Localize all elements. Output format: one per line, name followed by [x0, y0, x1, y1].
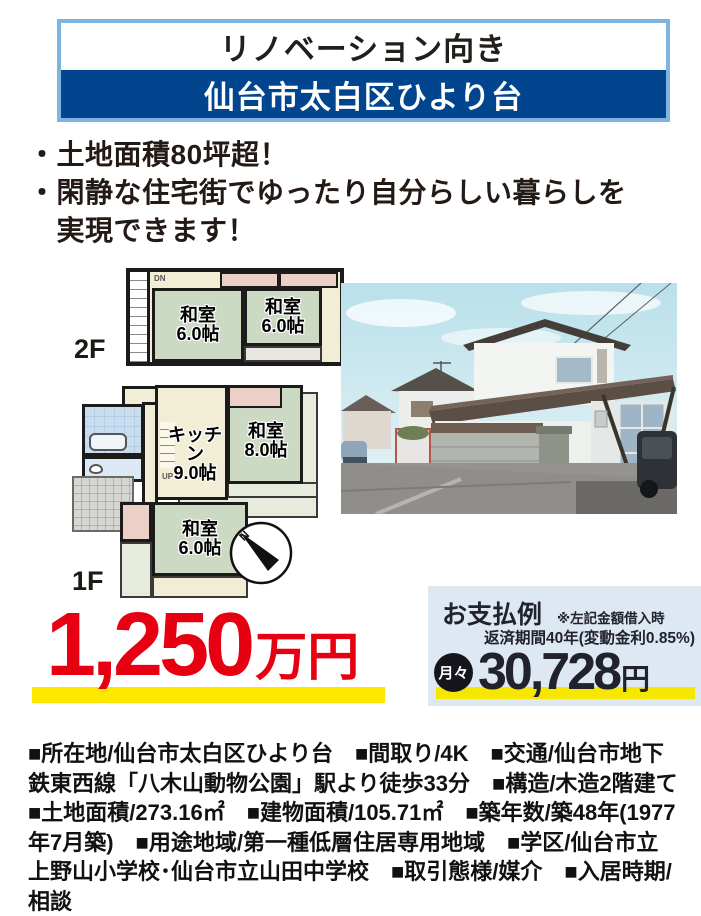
- room-size: 6.0帖: [261, 317, 304, 336]
- highlight-line-2: ・閑静な住宅街でゆったり自分らしい暮らしを: [28, 174, 688, 212]
- stair-down-label: DN: [154, 274, 166, 283]
- property-details-text: ■所在地/仙台市太白区ひより台 ■間取り/4K ■交通/仙台市地下鉄東西線「八木…: [28, 739, 680, 916]
- closet: [230, 388, 282, 408]
- floor-1f-label: 1F: [72, 566, 104, 597]
- header-banner: リノベーション向き 仙台市太白区ひより台: [57, 19, 670, 122]
- room-size: 9.0帖: [164, 464, 226, 483]
- room-size: 6.0帖: [176, 325, 219, 344]
- room-size: 8.0帖: [230, 441, 302, 460]
- payment-example-box: お支払例 ※左記金額借入時 返済期間40年(変動金利0.85%) 月々 30,7…: [428, 586, 701, 706]
- room-2f-tatami-left: 和室 6.0帖: [152, 288, 244, 362]
- highlight-line-1: ・土地面積80坪超！: [28, 136, 688, 174]
- payment-note-1: ※左記金額借入時: [557, 607, 665, 627]
- floor-2f-label: 2F: [74, 334, 106, 365]
- floorplan-2f: DN 和室 6.0帖 和室 6.0帖: [126, 268, 344, 366]
- monthly-amount: 30,728: [478, 649, 619, 696]
- floorplan-1f: UP キッチン 9.0帖 和室 8.0帖 和室 6.0帖 N: [68, 384, 364, 600]
- monthly-unit: 円: [621, 656, 650, 698]
- veranda-strip: [120, 542, 152, 598]
- room-size: 6.0帖: [178, 539, 221, 558]
- room-2f-tatami-right: 和室 6.0帖: [244, 288, 322, 346]
- room-name: 和室: [230, 422, 302, 441]
- monthly-payment: 30,728 円: [478, 649, 650, 698]
- price: 1,250 万円: [46, 603, 359, 690]
- price-amount: 1,250: [46, 603, 251, 689]
- room-name: 和室: [261, 298, 304, 317]
- header-location: 仙台市太白区ひより台: [61, 70, 666, 118]
- room-name: 和室: [178, 520, 221, 539]
- bathroom: [82, 404, 144, 456]
- room-1f-kitchen: UP キッチン 9.0帖: [155, 385, 228, 500]
- highlight-bullets: ・土地面積80坪超！ ・閑静な住宅街でゆったり自分らしい暮らしを 実現できます！: [28, 136, 688, 250]
- bathtub: [89, 433, 127, 451]
- room-name: キッチン: [164, 426, 226, 464]
- header-tagline: リノベーション向き: [61, 23, 666, 70]
- staircase-2f: [130, 272, 150, 362]
- room-1f-tatami-8: 和室 8.0帖: [227, 385, 303, 484]
- exterior-photo: [341, 283, 677, 514]
- price-unit: 万円: [255, 615, 359, 690]
- highlight-line-3: 実現できます！: [28, 212, 688, 250]
- toilet-icon: [89, 464, 103, 474]
- room-name: 和室: [176, 306, 219, 325]
- compass-icon: N: [226, 518, 296, 588]
- balcony-2f: [244, 346, 322, 362]
- monthly-badge: 月々: [434, 653, 473, 692]
- closet: [120, 502, 152, 542]
- closets-2f: [220, 272, 338, 288]
